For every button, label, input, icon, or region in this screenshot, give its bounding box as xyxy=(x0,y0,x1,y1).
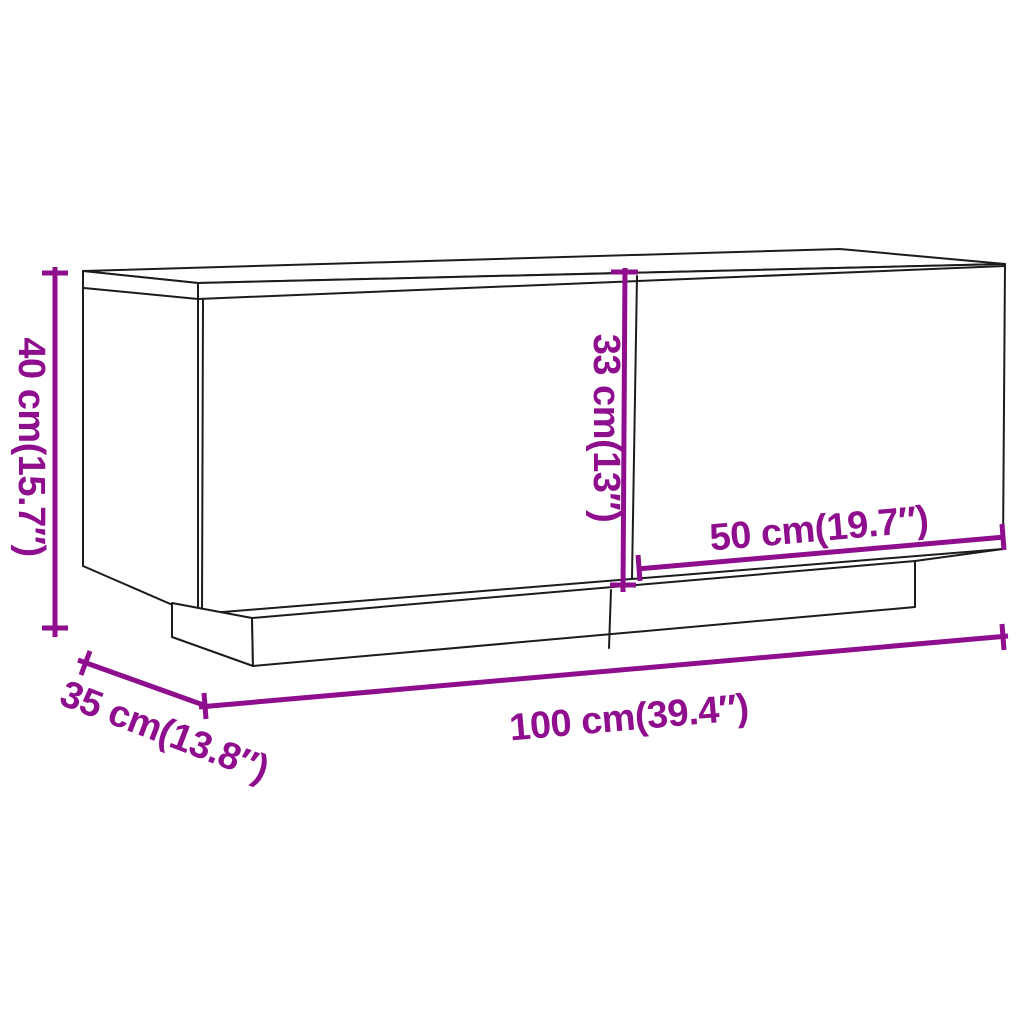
door-height-label: 33 cm(13″) xyxy=(585,334,627,523)
depth-dimension: 35 cm(13.8″) xyxy=(54,651,274,791)
dimension-tick xyxy=(1002,524,1004,550)
plinth-left-face xyxy=(172,603,253,666)
overall-height-dimension: 40 cm(15.7″) xyxy=(10,267,68,637)
cabinet-drawing xyxy=(83,249,1005,666)
overall-width-label: 100 cm(39.4″) xyxy=(508,687,751,750)
cabinet-dimension-diagram: 40 cm(15.7″) 33 cm(13″) 50 cm(19.7″) xyxy=(0,0,1024,1024)
door-left-edge xyxy=(202,300,203,615)
cabinet-left-side-panel xyxy=(83,271,198,616)
dimension-tick xyxy=(1002,624,1004,650)
diagram-canvas: 40 cm(15.7″) 33 cm(13″) 50 cm(19.7″) xyxy=(0,0,1024,1024)
overall-height-label: 40 cm(15.7″) xyxy=(10,337,52,556)
dimension-tick xyxy=(638,555,640,581)
